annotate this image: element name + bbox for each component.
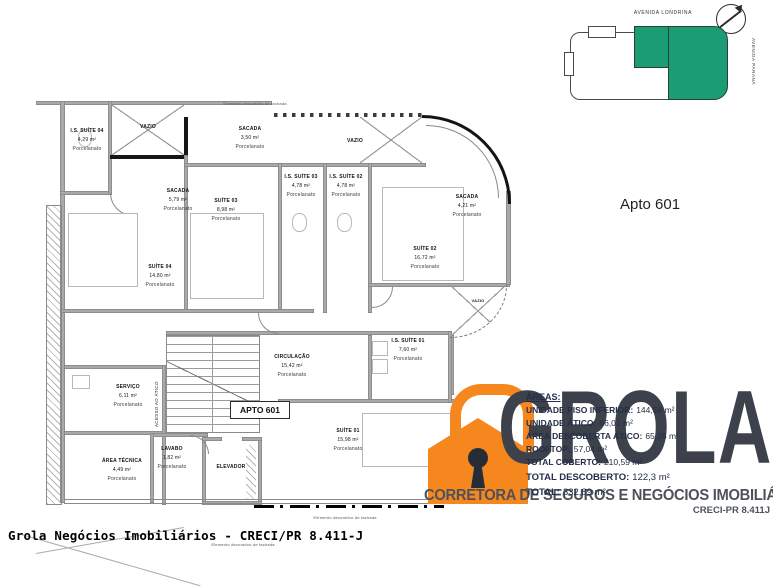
- room-servico: SERVIÇO 6,11 m² Porcelanato: [95, 383, 161, 410]
- laundry-sink: [72, 375, 90, 389]
- apto-601-box: APTO 601: [230, 401, 290, 419]
- wall: [64, 365, 166, 369]
- elevator-wall: [242, 437, 262, 441]
- wall: [506, 191, 511, 285]
- wall-accent: [110, 155, 188, 159]
- room-vazio-top-left: VAZIO: [115, 123, 181, 132]
- site-location-map: AVENIDA LONDRINA AVENIDA PARANÁ: [558, 2, 770, 108]
- apto-title: Apto 601: [620, 196, 680, 213]
- section-dash-line: [254, 505, 444, 508]
- room-suite-02: SUÍTE 02 16,72 m² Porcelanato: [392, 245, 458, 272]
- room-vazio-top-right: VAZIO: [322, 137, 388, 146]
- room-is-suite-02: I.S. SUÍTE 02 4,78 m² Porcelanato: [313, 173, 379, 200]
- room-elevador: ELEVADOR: [203, 463, 259, 472]
- areas-line: TOTAL COBERTO:210,59 m²: [526, 456, 679, 469]
- toilet: [337, 213, 352, 232]
- building-footprint: [570, 24, 760, 104]
- stair-divider: [212, 336, 213, 432]
- elevator-wall: [202, 437, 222, 441]
- facade-note: Elemento decorativo de fachada: [190, 101, 320, 106]
- highlight-unit-arm: [634, 26, 672, 68]
- building-bump: [588, 26, 616, 38]
- room-suite-03: SUÍTE 03 8,98 m² Porcelanato: [193, 197, 259, 224]
- room-lavabo: LAVABO 1,82 m² Porcelanato: [146, 445, 198, 472]
- areas-title: ÁREAS:: [526, 391, 679, 404]
- boundary-line: [64, 499, 456, 500]
- room-suite-04: SUÍTE 04 14,80 m² Porcelanato: [127, 263, 193, 290]
- void-quarter-hatch: [450, 285, 507, 338]
- logo-creci: CRECI-PR 8.411J: [560, 505, 770, 516]
- areas-line-total-descoberto: TOTAL DESCOBERTO:122,3 m²: [526, 471, 679, 484]
- room-vazio-right: VAZIO: [445, 297, 511, 304]
- wall: [60, 191, 112, 195]
- areas-line: UNIDADE PISO INFERIOR:144,58 m²: [526, 404, 679, 417]
- areas-line: ROOFTOP:57,04 m²: [526, 443, 679, 456]
- boundary-line: [64, 503, 456, 504]
- areas-line: UNIDADE ÁTICO:66,01 m²: [526, 417, 679, 430]
- areas-line: ÁREA DESCOBERTA ÁTICO:65,26 m²: [526, 430, 679, 443]
- areas-line-total: TOTAL:332,89 m²: [526, 486, 679, 499]
- facade-note: Elemento decorativo de fachada: [280, 515, 410, 520]
- wall-accent: [184, 117, 188, 159]
- elevator-hatch: [246, 445, 256, 499]
- building-notch: [564, 52, 574, 76]
- street-label-right: AVENIDA PARANÁ: [751, 38, 756, 102]
- room-sacada-right: SACADA 4,21 m² Porcelanato: [434, 193, 500, 220]
- room-is-suite-04: I.S. SUÍTE 04 4,29 m² Porcelanato: [54, 127, 120, 154]
- room-circulacao: CIRCULAÇÃO 15,42 m² Porcelanato: [259, 353, 325, 380]
- compass-arrow: [735, 2, 746, 12]
- wall: [150, 433, 208, 437]
- street-label-top: AVENIDA LONDRINA: [603, 10, 723, 16]
- toilet: [292, 213, 307, 232]
- bed: [190, 213, 264, 299]
- highlight-unit-main: [668, 26, 728, 100]
- door-arc: [372, 287, 393, 308]
- wall: [184, 163, 426, 167]
- areas-panel: ÁREAS: UNIDADE PISO INFERIOR:144,58 m² U…: [526, 391, 679, 499]
- room-is-suite-01: I.S. SUÍTE 01 7,60 m² Porcelanato: [375, 337, 441, 364]
- neighbor-wall-hatch: [46, 205, 62, 505]
- footer-credit: Grola Negócios Imobiliários - CRECI/PR 8…: [8, 528, 363, 543]
- room-suite-01: SUÍTE 01 15,98 m² Porcelanato: [315, 427, 381, 454]
- wall: [64, 431, 164, 435]
- room-sacada-top: SACADA 3,50 m² Porcelanato: [217, 125, 283, 152]
